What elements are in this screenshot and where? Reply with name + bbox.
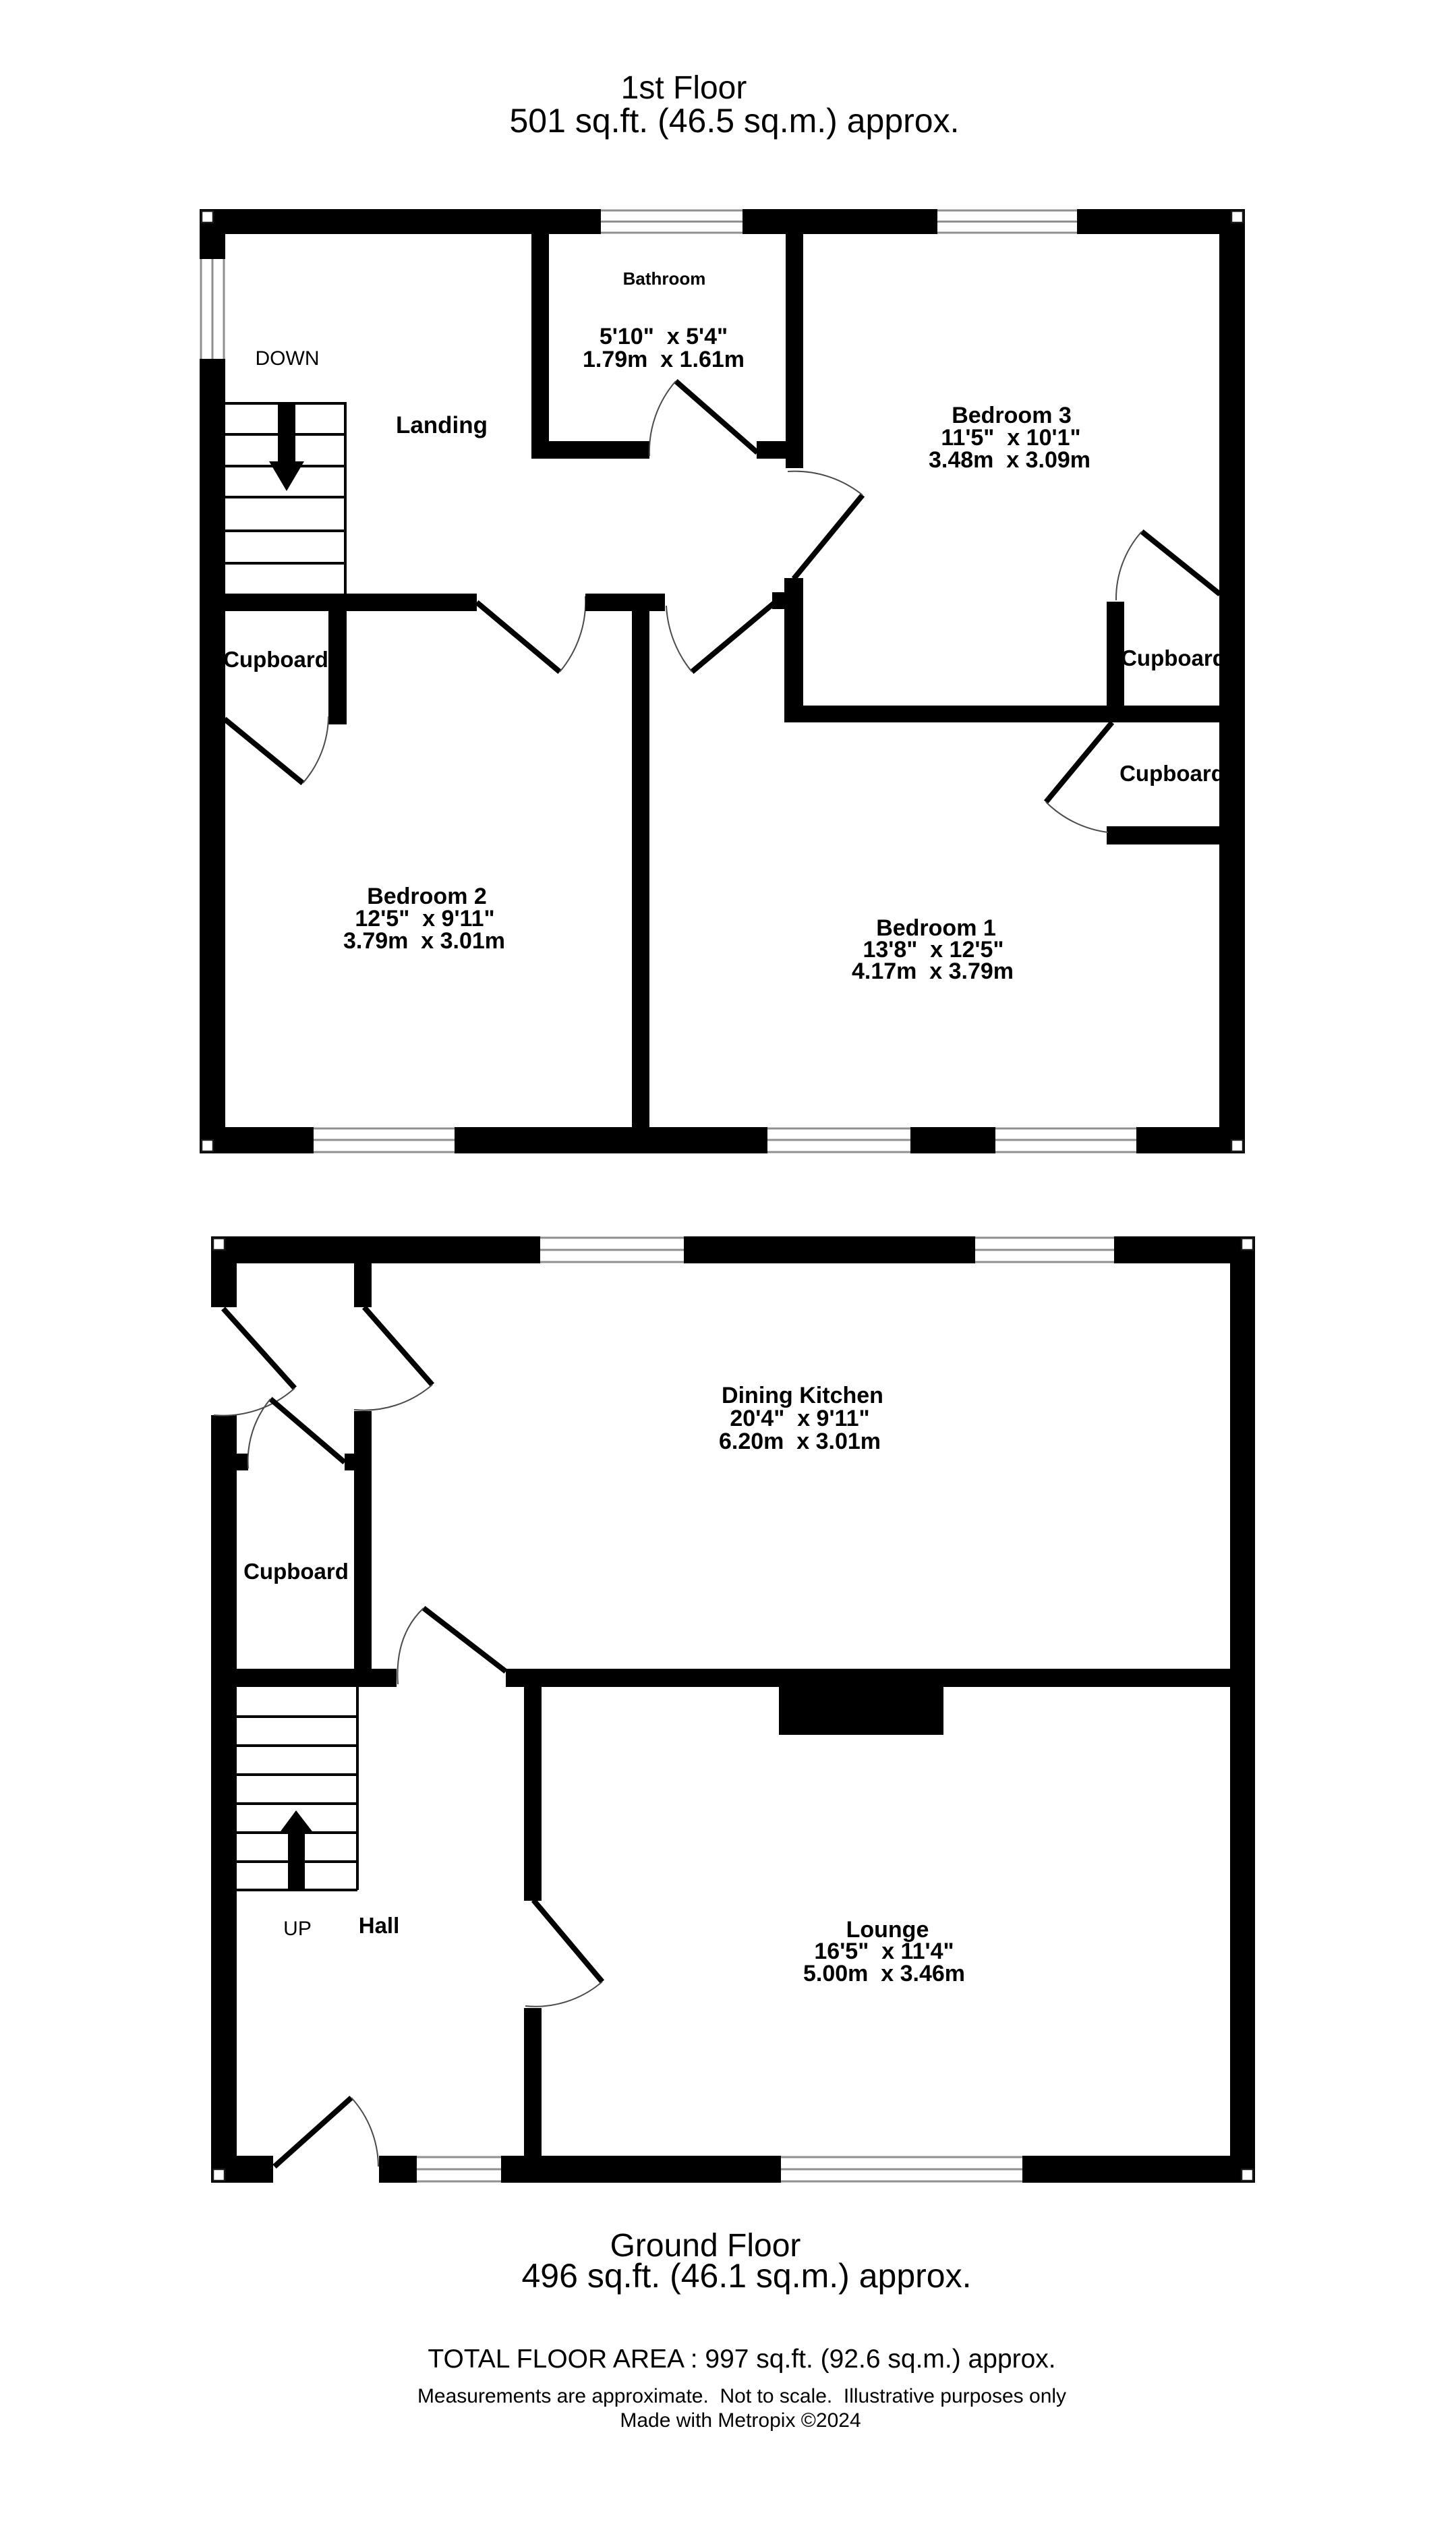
svg-text:Landing: Landing <box>396 412 488 438</box>
svg-text:4.17m x 3.79m: 4.17m x 3.79m <box>852 958 1014 984</box>
svg-text:501 sq.ft. (46.5 sq.m.) approx: 501 sq.ft. (46.5 sq.m.) approx. <box>510 102 960 140</box>
svg-text:Made with Metropix ©2024: Made with Metropix ©2024 <box>620 2409 861 2432</box>
svg-text:1.79m x 1.61m: 1.79m x 1.61m <box>583 347 745 372</box>
svg-text:Dining Kitchen: Dining Kitchen <box>722 1383 883 1408</box>
svg-text:Cupboard: Cupboard <box>223 647 328 672</box>
svg-text:Cupboard: Cupboard <box>1119 761 1225 786</box>
svg-text:5.00m x 3.46m: 5.00m x 3.46m <box>803 1961 965 1986</box>
svg-text:TOTAL FLOOR AREA : 997 sq.ft.: TOTAL FLOOR AREA : 997 sq.ft. (92.6 sq.m… <box>428 2345 1055 2374</box>
svg-text:6.20m x 3.01m: 6.20m x 3.01m <box>719 1429 881 1454</box>
svg-text:1st Floor: 1st Floor <box>621 70 747 106</box>
svg-text:496 sq.ft. (46.1 sq.m.) approx: 496 sq.ft. (46.1 sq.m.) approx. <box>522 2257 972 2295</box>
svg-text:Cupboard: Cupboard <box>243 1559 349 1584</box>
svg-text:Measurements are approximate.: Measurements are approximate. Not to sca… <box>417 2385 1066 2407</box>
svg-text:Cupboard: Cupboard <box>1121 646 1226 670</box>
svg-text:Hall: Hall <box>359 1913 400 1938</box>
svg-text:20'4" x 9'11": 20'4" x 9'11" <box>730 1406 869 1431</box>
svg-text:Bathroom: Bathroom <box>623 268 706 289</box>
svg-text:UP: UP <box>283 1918 312 1940</box>
svg-text:DOWN: DOWN <box>256 347 320 370</box>
svg-text:3.48m x 3.09m: 3.48m x 3.09m <box>929 447 1090 473</box>
svg-text:5'10" x 5'4": 5'10" x 5'4" <box>600 324 728 349</box>
svg-text:3.79m x 3.01m: 3.79m x 3.01m <box>343 928 505 954</box>
